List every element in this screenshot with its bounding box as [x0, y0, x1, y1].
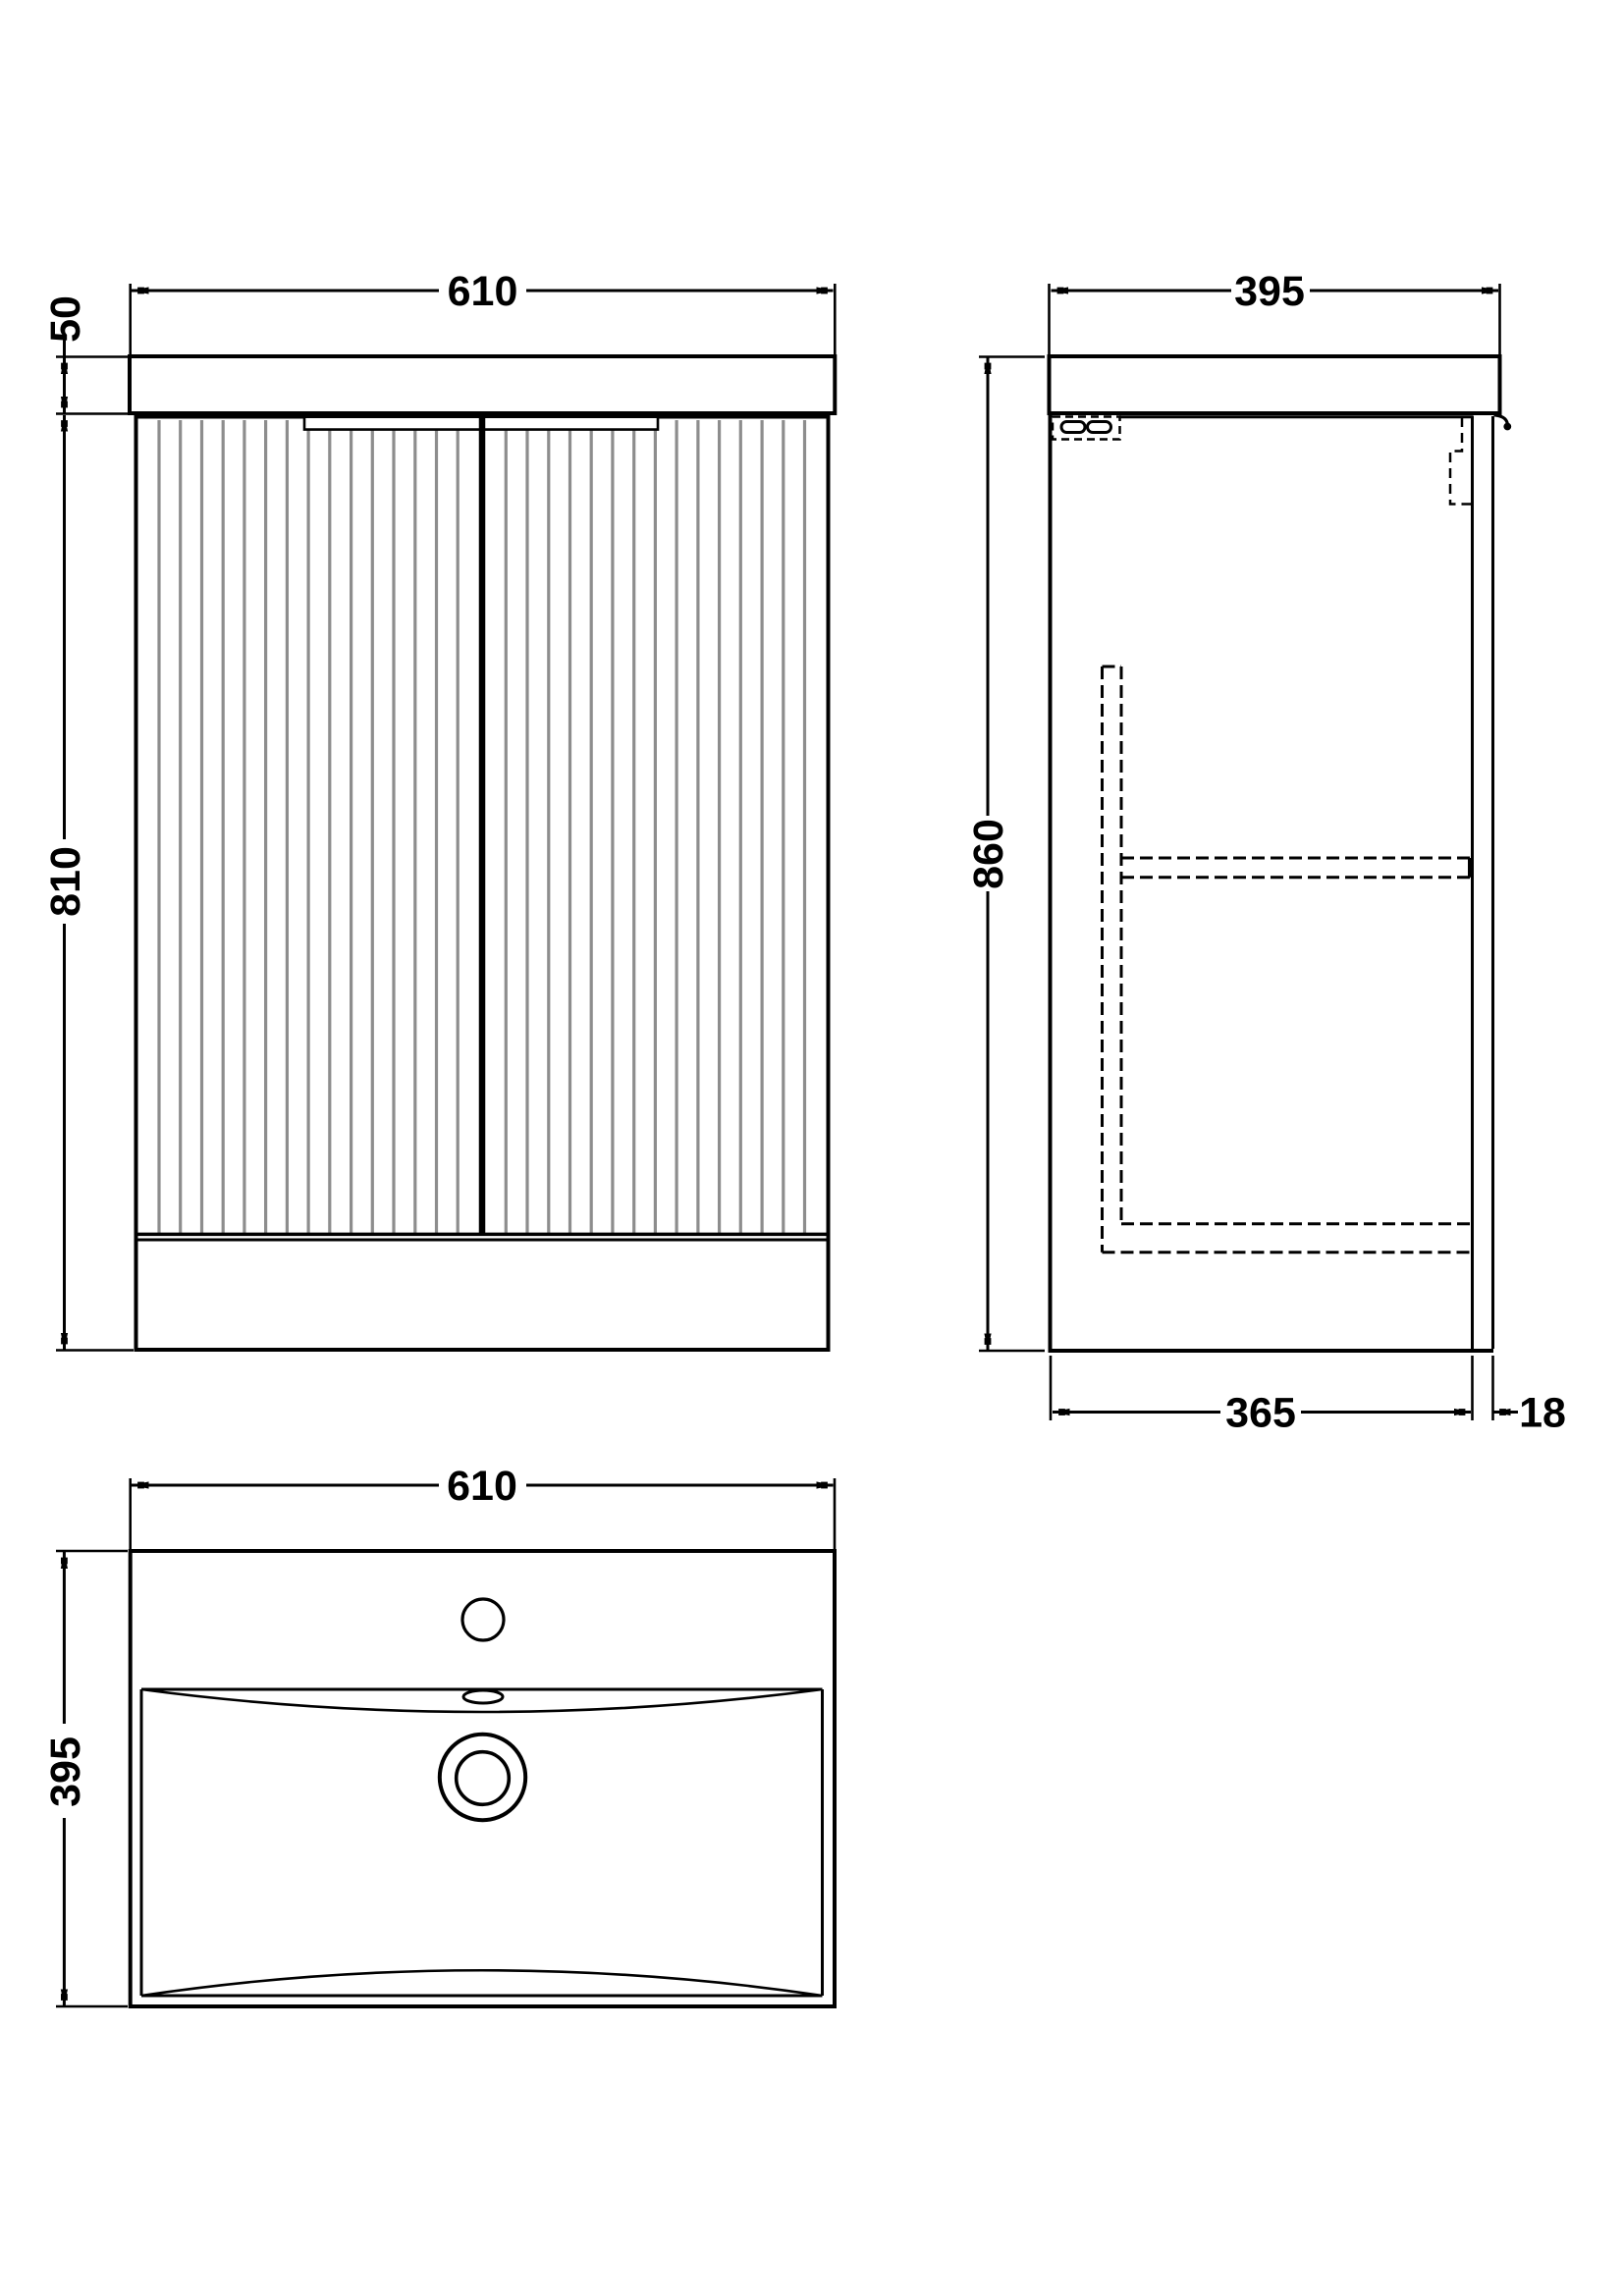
svg-text:50: 50 [42, 295, 89, 343]
svg-text:810: 810 [42, 846, 89, 917]
svg-text:18: 18 [1519, 1390, 1566, 1437]
svg-text:395: 395 [1234, 268, 1305, 315]
svg-text:610: 610 [447, 1463, 517, 1510]
svg-text:610: 610 [448, 268, 518, 315]
svg-text:860: 860 [965, 819, 1012, 889]
svg-text:365: 365 [1225, 1390, 1296, 1437]
svg-text:395: 395 [42, 1736, 89, 1807]
